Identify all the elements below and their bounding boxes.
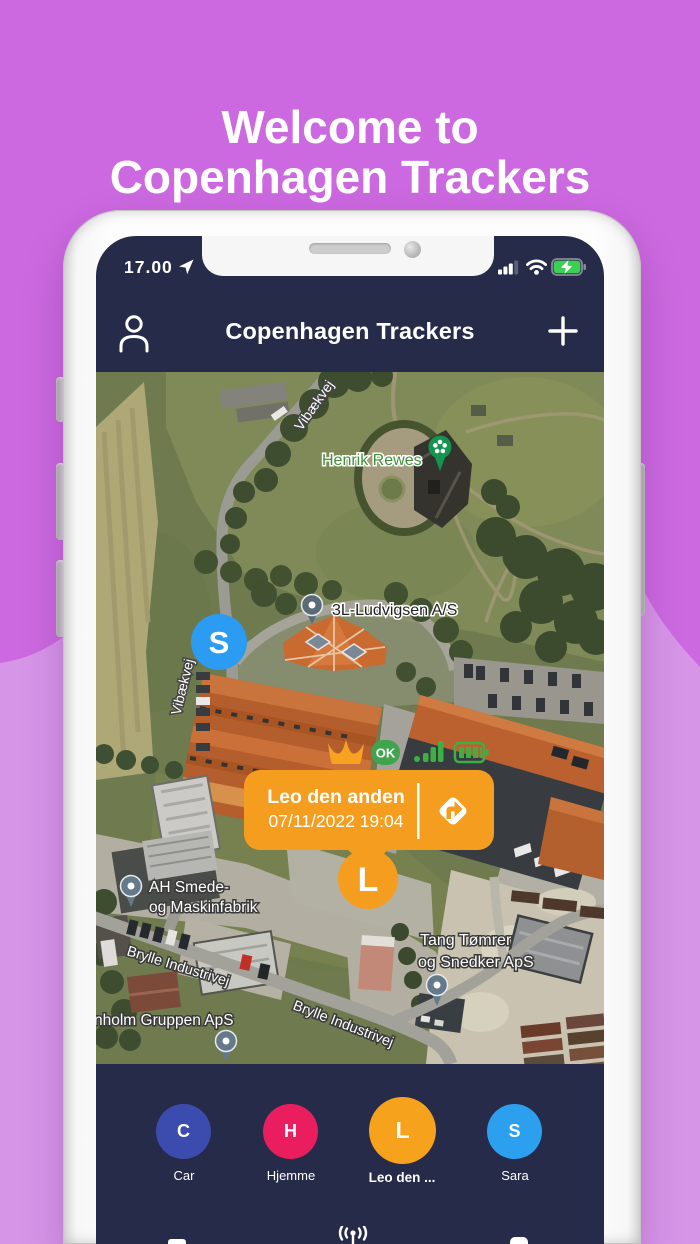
svg-text:nholm Gruppen ApS: nholm Gruppen ApS (96, 1012, 234, 1029)
svg-text:og Maskinfabrik: og Maskinfabrik (149, 899, 258, 916)
svg-text:AH Smede-: AH Smede- (149, 879, 229, 896)
svg-text:Henrik Rewes: Henrik Rewes (322, 452, 422, 469)
svg-text:07/11/2022 19:04: 07/11/2022 19:04 (269, 811, 404, 831)
svg-text:L: L (358, 861, 379, 899)
svg-text:og Snedker ApS: og Snedker ApS (418, 954, 534, 971)
svg-text:S: S (209, 625, 230, 660)
svg-text:Tang Tømrer: Tang Tømrer (420, 932, 512, 949)
svg-text:Leo den anden: Leo den anden (267, 786, 405, 808)
svg-text:OK: OK (376, 746, 396, 761)
svg-text:3L-Ludvigsen A/S: 3L-Ludvigsen A/S (332, 602, 457, 619)
